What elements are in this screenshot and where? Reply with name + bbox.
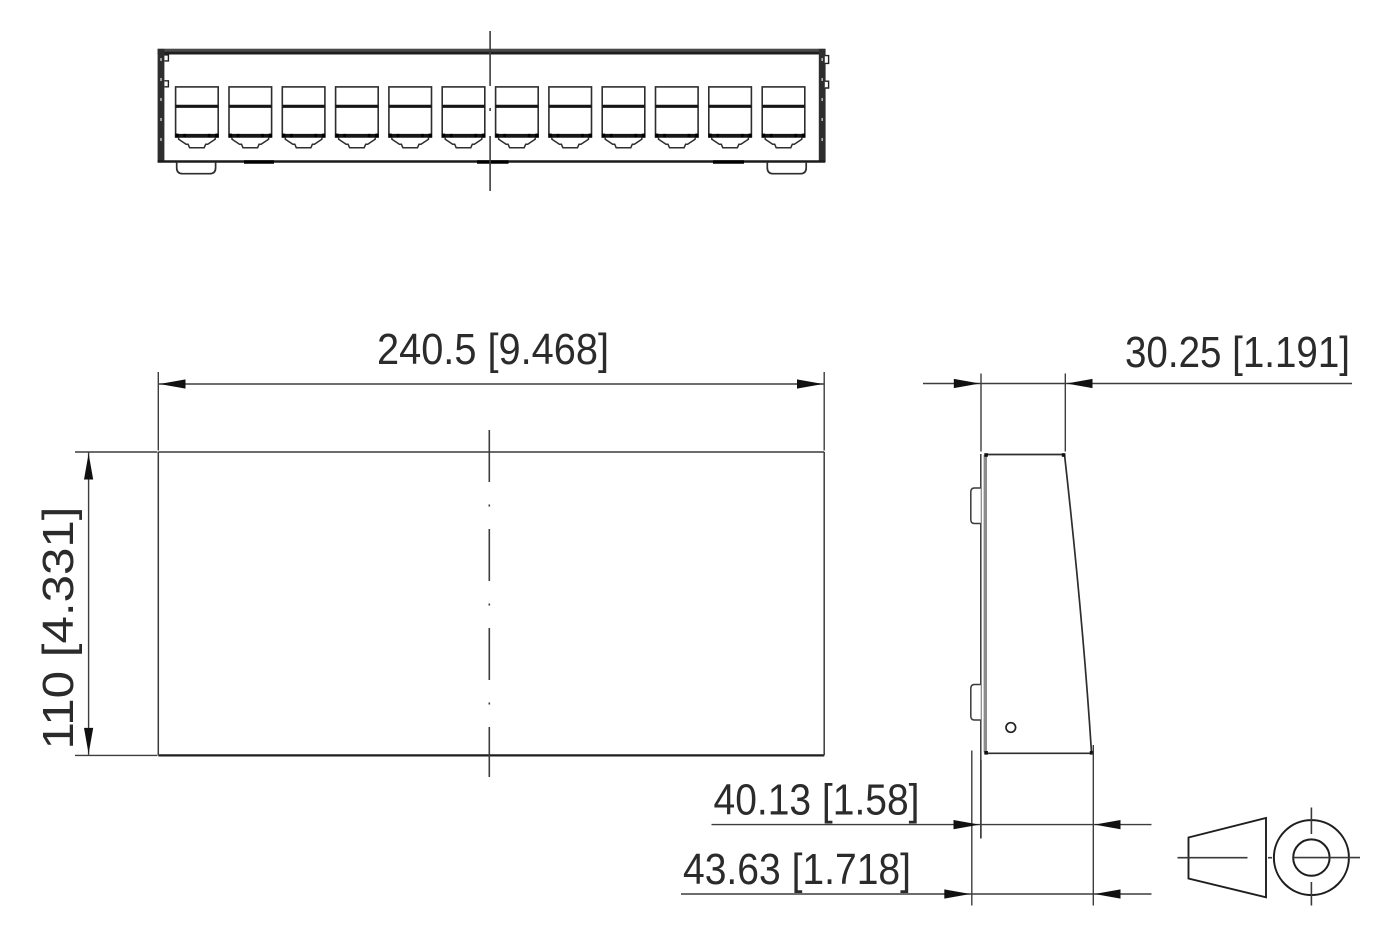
svg-text:30.25 [1.191]: 30.25 [1.191] [1125,328,1350,377]
svg-text:40.13 [1.58]: 40.13 [1.58] [714,776,920,825]
svg-text:43.63 [1.718]: 43.63 [1.718] [683,845,911,894]
svg-text:110 [4.331]: 110 [4.331] [34,507,83,750]
svg-text:240.5 [9.468]: 240.5 [9.468] [377,325,609,374]
